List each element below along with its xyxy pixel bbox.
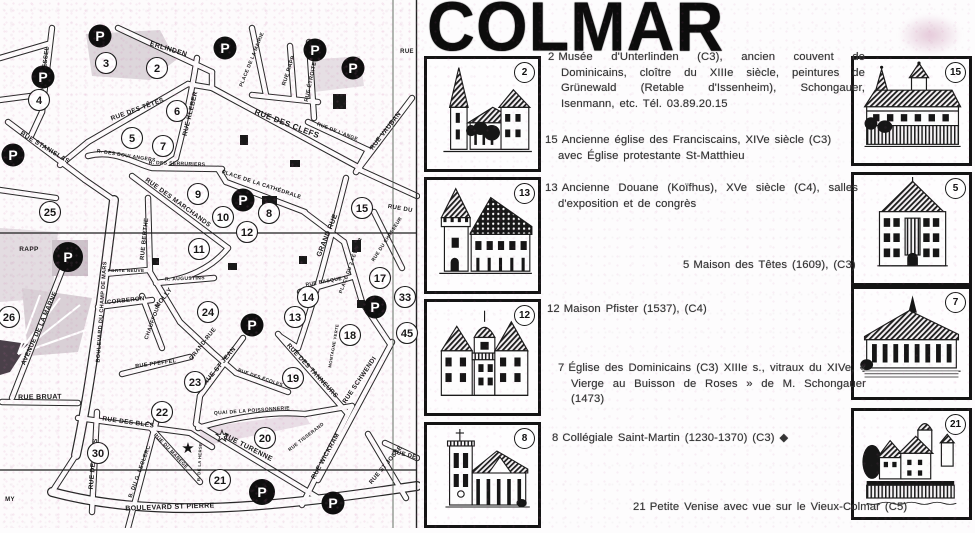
- thumbnail-number-badge: 13: [514, 183, 535, 204]
- map-marker-12: 12: [237, 222, 258, 243]
- svg-text:17: 17: [374, 273, 386, 285]
- svg-text:13: 13: [289, 312, 301, 324]
- svg-text:24: 24: [202, 307, 215, 319]
- legend-entry-petite-venise: 21Petite Venise avec vue sur le Vieux-Co…: [633, 500, 906, 516]
- legend-entry-maison-pfister: 12Maison Pfister (1537), (C4): [547, 302, 810, 318]
- map-marker-13: 13: [285, 307, 306, 328]
- svg-text:P: P: [257, 484, 266, 500]
- svg-text:19: 19: [287, 373, 299, 385]
- legend-entry-musee-unterlinden: 2Musée d'Unterlinden (C3), ancien couven…: [548, 50, 865, 112]
- map-marker-14: 14: [298, 287, 319, 308]
- entry-number: 7: [558, 362, 564, 374]
- map-marker-25: 25: [40, 202, 61, 223]
- svg-text:14: 14: [302, 292, 315, 304]
- street-label-rue-bruat: RUE BRUAT: [18, 394, 62, 402]
- thumbnail-musee-unterlinden: 2: [424, 56, 541, 172]
- map-marker-20: 20: [255, 428, 276, 449]
- map-marker-10: 10: [213, 207, 234, 228]
- parking-icon: P: [89, 25, 112, 48]
- svg-text:15: 15: [356, 203, 368, 215]
- map-marker-9: 9: [188, 184, 209, 205]
- parking-icon: P: [322, 492, 345, 515]
- legend-entry-ancienne-douane: 13Ancienne Douane (Koïfhus), XVe siècle …: [545, 181, 858, 212]
- legend-entry-eglise-dominicains: 7Église des Dominicains (C3) XIIIe s., v…: [558, 361, 866, 408]
- parking-icon: P: [232, 189, 255, 212]
- svg-text:30: 30: [92, 448, 104, 460]
- map-marker-30: 30: [88, 443, 109, 464]
- map-marker-5: 5: [122, 128, 143, 149]
- thumbnail-collegiale-saint-martin: 8: [424, 422, 541, 528]
- svg-text:P: P: [220, 40, 229, 56]
- svg-text:45: 45: [401, 328, 413, 340]
- map-marker-6: 6: [167, 101, 188, 122]
- parking-icon: P: [249, 479, 275, 505]
- svg-text:P: P: [95, 28, 104, 44]
- street-label-rue: RUE: [400, 49, 414, 55]
- thumbnail-number-badge: 15: [945, 62, 966, 83]
- svg-text:P: P: [348, 60, 357, 76]
- svg-text:6: 6: [174, 106, 180, 118]
- entry-number: 13: [545, 182, 558, 194]
- svg-text:21: 21: [214, 475, 226, 487]
- thumbnail-maison-pfister: 12: [424, 299, 541, 416]
- svg-text:12: 12: [241, 227, 253, 239]
- map-marker-18: 18: [340, 325, 361, 346]
- entry-number: 5: [683, 259, 689, 271]
- map-marker-17: 17: [370, 268, 391, 289]
- entry-text: Collégiale Saint-Martin (1230-1370) (C3)…: [562, 432, 788, 444]
- svg-text:P: P: [370, 299, 379, 315]
- svg-text:3: 3: [103, 58, 109, 70]
- svg-text:7: 7: [160, 141, 166, 153]
- entry-text: Musée d'Unterlinden (C3), ancien couvent…: [558, 51, 865, 110]
- parking-icon: P: [214, 37, 237, 60]
- svg-text:22: 22: [156, 407, 168, 419]
- svg-text:2: 2: [154, 63, 160, 75]
- parking-icon: P: [364, 296, 387, 319]
- map-marker-4: 4: [29, 90, 50, 111]
- thumbnail-number-badge: 7: [945, 292, 966, 313]
- street-label-porte-neuve: PORTE NEUVE: [108, 268, 145, 273]
- map-marker-11: 11: [189, 239, 210, 260]
- parking-icon: P: [241, 314, 264, 337]
- svg-text:8: 8: [266, 208, 272, 220]
- map-marker-21: 21: [210, 470, 231, 491]
- parking-icon: P: [342, 57, 365, 80]
- entry-text: Église des Dominicains (C3) XIIIe s., vi…: [568, 362, 866, 405]
- svg-text:9: 9: [195, 189, 201, 201]
- map-marker-23: 23: [185, 372, 206, 393]
- street-label-my: MY: [5, 497, 15, 503]
- svg-text:25: 25: [44, 207, 56, 219]
- entry-number: 12: [547, 303, 560, 315]
- entry-number: 21: [633, 501, 646, 513]
- svg-text:P: P: [238, 192, 247, 208]
- map-marker-3: 3: [96, 53, 117, 74]
- thumbnail-eglise-franciscains: 15: [851, 56, 972, 166]
- svg-text:5: 5: [129, 133, 135, 145]
- thumbnail-number-badge: 12: [514, 305, 535, 326]
- map-marker-8: 8: [259, 203, 280, 224]
- ent­ry-text: Maison Pfister (1537), (C4): [564, 303, 707, 315]
- map-marker-33: 33: [395, 287, 416, 308]
- map-marker-7: 7: [153, 136, 174, 157]
- entry-text: Petite Venise avec vue sur le Vieux-Colm…: [650, 501, 907, 513]
- legend-entry-collegiale-saint-martin: 8Collégiale Saint-Martin (1230-1370) (C3…: [552, 431, 860, 447]
- thumbnail-number-badge: 5: [945, 178, 966, 199]
- svg-text:18: 18: [344, 330, 356, 342]
- scan-smudge: [898, 14, 962, 56]
- entry-text: Ancienne Douane (Koïfhus), XVe siècle (C…: [558, 182, 858, 210]
- street-label-rapp: RAPP: [19, 246, 39, 253]
- map-marker-22: 22: [152, 402, 173, 423]
- map-marker-45: 45: [397, 323, 418, 344]
- city-map: ERLINDENRUE ROESSELRUE KLEBERRUE DES TÊT…: [0, 0, 420, 528]
- parking-icon: P: [32, 66, 55, 89]
- parking-icon: P: [304, 39, 327, 62]
- svg-text:26: 26: [3, 312, 15, 324]
- thumbnail-number-badge: 8: [514, 428, 535, 449]
- map-marker-2: 2: [147, 58, 168, 79]
- thumbnail-ancienne-douane-koifhus: 13: [424, 177, 541, 294]
- map-marker-26: 26: [0, 307, 20, 328]
- legend-entry-maison-des-tetes: 5Maison des Têtes (1609), (C3): [683, 258, 871, 274]
- star-marker: ★: [215, 428, 228, 445]
- svg-text:P: P: [38, 69, 47, 85]
- scanned-colmar-page: { "title": "COLMAR", "map": { "parking_l…: [0, 0, 975, 528]
- entry-number: 8: [552, 432, 558, 444]
- map-marker-24: 24: [198, 302, 219, 323]
- star-marker: ★: [181, 440, 194, 457]
- svg-text:4: 4: [36, 95, 43, 107]
- svg-text:20: 20: [259, 433, 271, 445]
- svg-text:33: 33: [399, 292, 411, 304]
- entry-text: Ancienne église des Franciscains, XIVe s…: [558, 134, 831, 162]
- svg-text:10: 10: [217, 212, 229, 224]
- svg-text:P: P: [8, 147, 17, 163]
- svg-text:P: P: [310, 42, 319, 58]
- parking-icon: P: [2, 144, 25, 167]
- svg-text:11: 11: [193, 244, 205, 256]
- city-map-panel: ERLINDENRUE ROESSELRUE KLEBERRUE DES TÊT…: [0, 0, 420, 528]
- legend-entry-eglise-franciscains: 15Ancienne église des Franciscains, XIVe…: [545, 133, 858, 164]
- svg-text:P: P: [247, 317, 256, 333]
- svg-text:23: 23: [189, 377, 201, 389]
- thumbnail-eglise-dominicains: 7: [851, 286, 972, 400]
- parking-icon: P: [53, 242, 83, 272]
- svg-text:P: P: [328, 495, 337, 511]
- thumbnail-number-badge: 21: [945, 414, 966, 435]
- map-marker-15: 15: [352, 198, 373, 219]
- entry-text: Maison des Têtes (1609), (C3): [693, 259, 855, 271]
- thumbnail-number-badge: 2: [514, 62, 535, 83]
- map-marker-19: 19: [283, 368, 304, 389]
- entry-number: 2: [548, 51, 554, 63]
- svg-text:P: P: [63, 249, 72, 265]
- entry-number: 15: [545, 134, 558, 146]
